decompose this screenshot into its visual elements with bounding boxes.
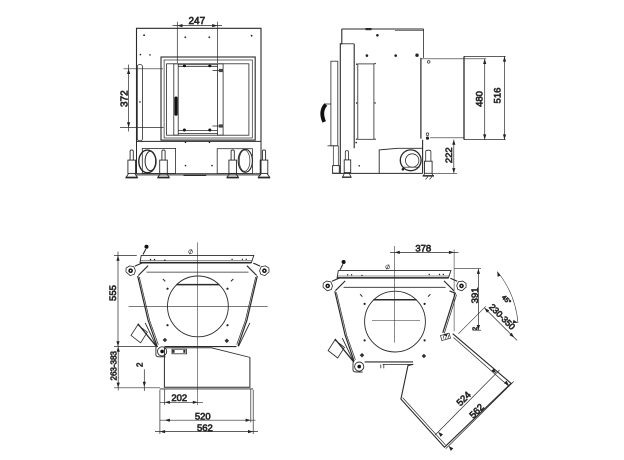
svg-text:480: 480 (475, 91, 486, 107)
svg-text:222: 222 (444, 147, 455, 163)
svg-text:516: 516 (493, 88, 504, 104)
svg-text:202: 202 (171, 393, 187, 404)
svg-text:562: 562 (468, 402, 487, 421)
svg-text:2: 2 (472, 327, 479, 331)
svg-text:247: 247 (188, 16, 205, 27)
svg-text:555: 555 (108, 285, 119, 301)
svg-text:524: 524 (455, 390, 474, 409)
svg-text:372: 372 (120, 90, 131, 107)
svg-text:45°: 45° (500, 293, 513, 306)
svg-text:391: 391 (470, 287, 481, 303)
svg-text:562: 562 (197, 423, 213, 434)
svg-text:230-350: 230-350 (487, 302, 517, 332)
svg-text:378: 378 (415, 243, 431, 254)
svg-text:520: 520 (195, 412, 211, 423)
svg-text:263-383: 263-383 (109, 351, 118, 381)
svg-text:2: 2 (136, 362, 145, 367)
